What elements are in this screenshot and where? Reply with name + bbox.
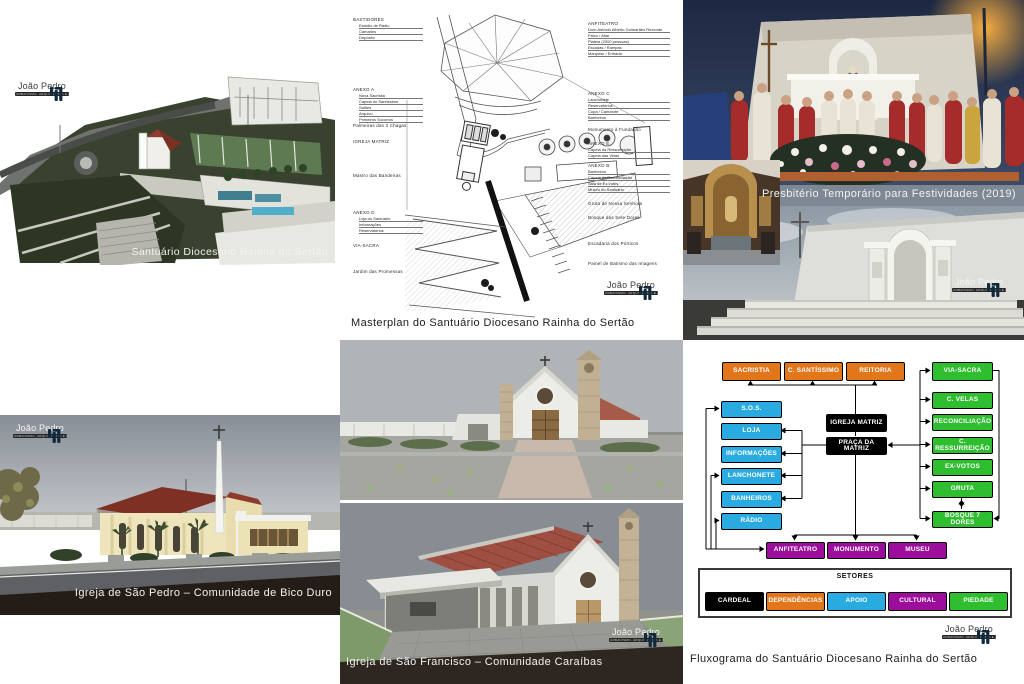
flow-node-gruta: GRUTA xyxy=(932,481,993,498)
annotation-item: Capela das Velas xyxy=(588,153,670,159)
aerial-render-image xyxy=(0,25,340,265)
annotation-title: Bosque das Sete Dores xyxy=(588,215,676,221)
joao-pedro-logo: João Pedro URBANISMO, ARQUITETURA E CONS… xyxy=(603,279,659,295)
flow-node-bosque-7-dores: BOSQUE 7 DORES xyxy=(932,511,993,528)
annotation-item: Depósito xyxy=(359,35,423,41)
flow-node-banheiros: BANHEIROS xyxy=(721,491,782,508)
masterplan-annotation: Painel de Batismo das Imagens xyxy=(588,261,676,267)
annotation-title: Painel de Batismo das Imagens xyxy=(588,261,676,267)
annotation-title: IGREJA MATRIZ xyxy=(353,139,423,145)
flow-node-museu: MUSEU xyxy=(888,542,947,559)
flow-node-ressurreicao: C. RESSURREIÇÃO xyxy=(932,437,993,454)
panel-presbytery: Presbitério Temporário para Festividades… xyxy=(683,0,1024,340)
flow-node-praca-da-matriz: PRAÇA DA MATRIZ xyxy=(826,437,887,455)
annotation-item: Reservatórios xyxy=(359,228,423,234)
flow-node-santissimo: C. SANTÍSSIMO xyxy=(784,362,843,381)
panel-caption: Masterplan do Santuário Diocesano Rainha… xyxy=(351,317,635,329)
panel-masterplan: BASTIDORESEstúdio de RádioCamarinsDepósi… xyxy=(345,5,680,335)
legend-dependencias: DEPENDÊNCIAS xyxy=(766,592,825,611)
masterplan-annotation: BASTIDORESEstúdio de RádioCamarinsDepósi… xyxy=(353,17,423,41)
masterplan-annotation: ANEXO BBanheirosCapela da ReconciliaçãoS… xyxy=(588,163,676,193)
annotation-item: Primeiros Socorros xyxy=(359,117,423,123)
annotation-title: Palmeiras das 3 Chagas xyxy=(353,123,423,129)
masterplan-annotation: Jardim das Promessas xyxy=(353,269,423,275)
legend-apoio: APOIO xyxy=(827,592,886,611)
masterplan-annotation: VIA-SACRA xyxy=(353,243,423,249)
flow-node-lanchonete: LANCHONETE xyxy=(721,468,782,485)
masterplan-annotation: ANEXO CLanchoneteReservatóriosCopa / Cam… xyxy=(588,91,676,121)
masterplan-annotation: Palmeiras das 3 Chagas xyxy=(353,123,423,129)
masterplan-annotation: IGREJA MATRIZ xyxy=(353,139,423,145)
legend-cardeal: CARDEAL xyxy=(705,592,764,611)
joao-pedro-logo: João Pedro URBANISMO, ARQUITETURA E CONS… xyxy=(951,276,1007,292)
masterplan-annotation: Bosque das Sete Dores xyxy=(588,215,676,221)
panel-sao-pedro: Igreja de São Pedro – Comunidade de Bico… xyxy=(0,415,340,615)
flow-node-sacristia: SACRISTIA xyxy=(722,362,781,381)
panel-caption: Fluxograma do Santuário Diocesano Rainha… xyxy=(690,653,977,665)
legend-cultural: CULTURAL xyxy=(888,592,947,611)
panel-caption: Presbitério Temporário para Festividades… xyxy=(762,188,1016,200)
flow-node-informacoes: INFORMAÇÕES xyxy=(721,446,782,463)
flow-node-loja: LOJA xyxy=(721,423,782,440)
flow-node-igreja-matriz: IGREJA MATRIZ xyxy=(826,414,887,432)
flow-node-reitoria: REITORIA xyxy=(846,362,905,381)
panel-caption: Santuário Diocesano Rainha do Sertão xyxy=(131,246,328,258)
masterplan-annotation: Escadaria dos Pórticos xyxy=(588,241,676,247)
masterplan-annotation: ANFITEATRODom Antônio Alberto Guimarães … xyxy=(588,21,676,57)
masterplan-annotation: Gruta de Nossa Senhora xyxy=(588,201,676,207)
flow-node-velas: C. VELAS xyxy=(932,392,993,409)
flow-node-reconciliacao: RECONCILIAÇÃO xyxy=(932,414,993,431)
masterplan-annotation: ANEXO ECapela da RessurreiçãoCapela das … xyxy=(588,141,676,159)
annotation-title: Monumento à Fundação xyxy=(588,127,676,133)
joao-pedro-logo: João Pedro URBANISMO, ARQUITETURA E CONS… xyxy=(608,626,664,642)
masterplan-annotation: ANEXO ANova SacristiaCapela do Santíssim… xyxy=(353,87,423,123)
flowchart-legend: SETORES CARDEAL DEPENDÊNCIAS APOIO CULTU… xyxy=(698,568,1012,618)
annotation-title: VIA-SACRA xyxy=(353,243,423,249)
flow-node-ex-votos: EX-VOTOS xyxy=(932,459,993,476)
annotation-item: Museu do Santuário xyxy=(588,187,670,193)
legend-title: SETORES xyxy=(700,573,1010,580)
annotation-title: Mastro das Bandeiras xyxy=(353,173,423,179)
joao-pedro-logo: João Pedro URBANISMO, ARQUITETURA E CONS… xyxy=(14,80,70,96)
panel-aerial-render: Santuário Diocesano Rainha do Sertão Joã… xyxy=(0,25,340,265)
legend-piedade: PIEDADE xyxy=(949,592,1008,611)
annotation-title: Jardim das Promessas xyxy=(353,269,423,275)
panel-caption: Igreja de São Francisco – Comunidade Car… xyxy=(346,656,602,668)
annotation-title: Escadaria dos Pórticos xyxy=(588,241,676,247)
annotation-item: Marquise / Entrada xyxy=(588,51,670,57)
masterplan-left-annotations: BASTIDORESEstúdio de RádioCamarinsDepósi… xyxy=(353,5,423,335)
flow-node-radio: RÁDIO xyxy=(721,513,782,530)
joao-pedro-logo: João Pedro URBANISMO, ARQUITETURA E CONS… xyxy=(12,422,68,438)
masterplan-annotation: ANEXO DLoja do SantuárioInformaçõesReser… xyxy=(353,210,423,234)
panel-flowchart: SACRISTIA C. SANTÍSSIMO REITORIA VIA-SAC… xyxy=(683,355,1024,684)
annotation-title: Gruta de Nossa Senhora xyxy=(588,201,676,207)
panel-caption: Igreja de São Pedro – Comunidade de Bico… xyxy=(75,587,332,599)
masterplan-annotation: Monumento à Fundação xyxy=(588,127,676,133)
flow-node-anfiteatro: ANFITEATRO xyxy=(766,542,825,559)
masterplan-annotation: Mastro das Bandeiras xyxy=(353,173,423,179)
flow-node-via-sacra: VIA-SACRA xyxy=(932,362,993,381)
panel-sao-francisco: Igreja de São Francisco – Comunidade Car… xyxy=(340,340,683,684)
flow-node-sos: S.O.S. xyxy=(721,401,782,418)
joao-pedro-logo: João Pedro URBANISMO, ARQUITETURA E CONS… xyxy=(941,623,997,639)
portfolio-sheet: Santuário Diocesano Rainha do Sertão Joã… xyxy=(0,0,1024,684)
annotation-item: Banheiros xyxy=(588,115,670,121)
flow-node-monumento: MONUMENTO xyxy=(827,542,886,559)
